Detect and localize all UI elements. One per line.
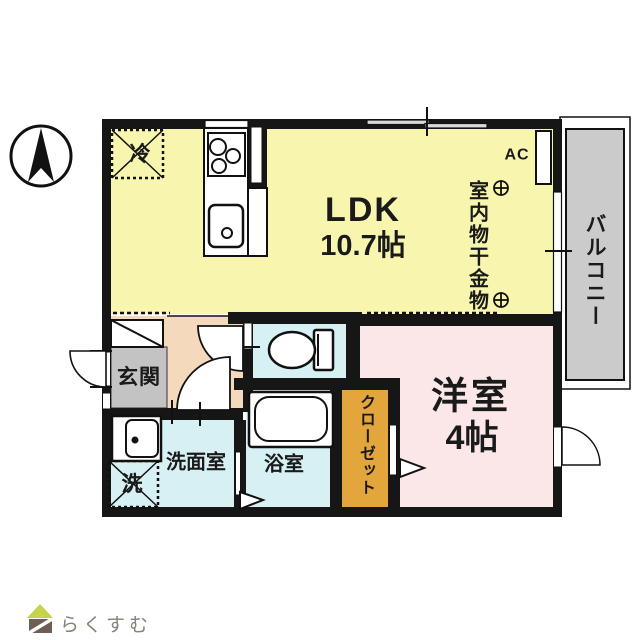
western-door-swing	[562, 427, 600, 465]
kitchen-stub-slot	[251, 127, 262, 183]
toilet-icon	[269, 330, 333, 370]
western-room-size-label: 4帖	[446, 421, 499, 457]
bathtub-icon	[249, 392, 333, 447]
wall-bottom	[102, 507, 562, 517]
logo-text: らくすむ	[60, 610, 152, 637]
kitchen-window	[205, 121, 248, 128]
floorplan-drawing	[0, 0, 640, 640]
logo-house-icon	[27, 604, 53, 633]
laundry-hook-icon-top	[494, 181, 508, 195]
top-window-pane-1	[367, 120, 429, 125]
wall-top	[102, 119, 562, 129]
shoe-cabinet-icon	[111, 320, 163, 347]
kitchen-counter-return	[248, 188, 267, 256]
kitchen-sink-icon	[209, 205, 243, 247]
washer-space-label: 洗	[122, 474, 143, 496]
closet-door-leaf	[390, 425, 397, 475]
entrance-label: 玄関	[117, 367, 161, 389]
bathroom-label: 浴室	[264, 455, 304, 476]
washroom-label: 洗面室	[166, 453, 226, 474]
entrance-side-slot	[103, 393, 111, 409]
wall-toilet-bottom	[234, 378, 400, 390]
balcony-label: バルコニー	[579, 213, 609, 328]
ac-label: AC	[504, 148, 529, 165]
compass-icon	[11, 126, 71, 186]
ldk-size-label: 10.7帖	[320, 231, 405, 261]
toilet-door-opening	[244, 323, 252, 349]
floorplan-canvas: LDK 10.7帖 室内物干金物 AC バルコニー 玄関 洗面室 浴室 クローゼ…	[0, 0, 640, 640]
laundry-hardware-label: 室内物干金物	[463, 180, 492, 312]
entrance-door-swing	[70, 351, 106, 387]
laundry-hook-icon-bottom	[494, 293, 508, 307]
wall-western-top	[358, 314, 562, 326]
washbasin-icon	[112, 416, 161, 461]
western-door-leaf	[554, 427, 562, 467]
ac-unit-icon	[536, 131, 551, 184]
wall-left	[102, 119, 111, 517]
top-window-pane-2	[425, 124, 487, 129]
refrigerator-space-label: 冷	[130, 144, 151, 166]
bath-door-slot	[236, 452, 241, 495]
closet-label: クローゼット	[353, 394, 377, 496]
western-room-label: 洋室	[431, 378, 511, 417]
ldk-label: LDK	[325, 193, 401, 229]
